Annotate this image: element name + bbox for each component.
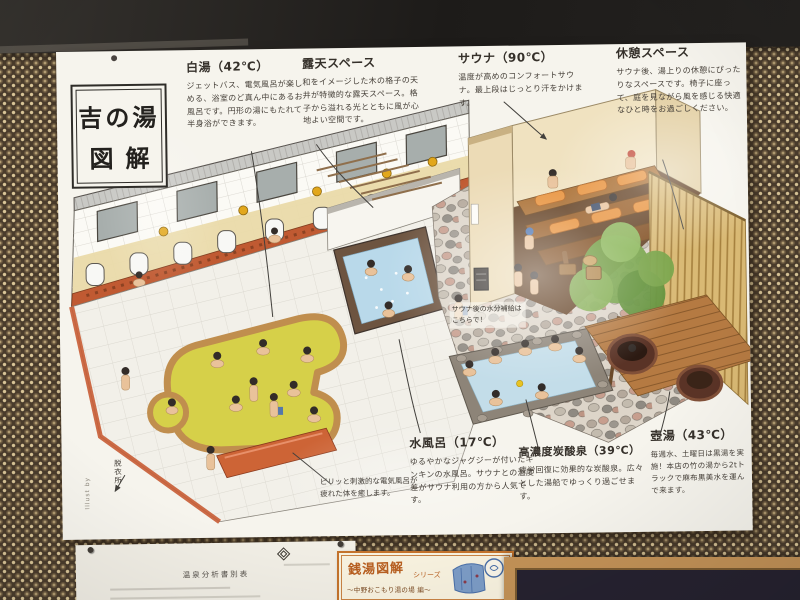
annotation-sauna: サウナ（90℃） 温度が高めのコンフォートサウナ。最上段はじっとり汗をかけます。 (458, 47, 589, 110)
annotation-tansan-body: 疲労回復に効果的な炭酸泉。広々とした湯船でゆっくり過ごせます。 (519, 462, 648, 503)
pushpin (111, 55, 117, 61)
annotation-tsuboyu-title: 壺湯（43℃） (650, 425, 746, 444)
illustrator-credit: Illust by (84, 448, 92, 510)
note-denki: ピリッと刺激的な電気風呂が疲れた体を癒します。 (320, 475, 422, 500)
annotation-sauna-body: 温度が高めのコンフォートサウナ。最上段はじっとり汗をかけます。 (458, 69, 589, 110)
annotation-tansan: 高濃度炭酸泉（39℃） 疲労回復に効果的な炭酸泉。広々とした湯船でゆっくり過ごせ… (518, 441, 647, 503)
annotation-roten-body: 和をイメージした木の格子の天井が特徴的な露天スペース。格子から溢れる光とともに風… (302, 75, 421, 129)
annotation-kyukei-body: サウナ後、湯上りの休憩にぴったりなスペースです。椅子に座って、庭を見ながら風を感… (616, 64, 743, 118)
annotation-roten-title: 露天スペース (302, 53, 420, 72)
poster-title-inner-border: 吉の湯 図解 (76, 89, 163, 184)
annotation-roten: 露天スペース 和をイメージした木の格子の天井が特徴的な露天スペース。格子から溢れ… (302, 53, 422, 129)
mini-poster-subtitle: 〜中野おこもり湯の場 編〜 (347, 584, 431, 594)
photo-of-bathhouse-poster: 吉の湯 図解 白湯（42℃） ジェットバス、電気風呂が楽しめる、浴室のど真ん中に… (0, 0, 800, 600)
annotation-shirayu-body: ジェットバス、電気風呂が楽しめる、浴室のど真ん中にあるお風呂です。円形の湯にもた… (186, 78, 305, 132)
annotation-tsuboyu: 壺湯（43℃） 毎週水、土曜日は黒湯を実施！本店の竹の湯から2tトラックで麻布黒… (650, 425, 747, 497)
annotation-tansan-title: 高濃度炭酸泉（39℃） (518, 441, 646, 460)
pushpin (337, 541, 343, 547)
poster-title-box: 吉の湯 図解 (70, 83, 167, 188)
annotation-sauna-title: サウナ（90℃） (458, 47, 588, 67)
note-suibun: サウナ後の水分補給はこちらで！ (450, 301, 526, 328)
sheet-row (110, 595, 260, 599)
poster-title-line1: 吉の湯 (78, 98, 159, 134)
sheet-row (110, 587, 230, 591)
mini-poster-series: シリーズ (413, 570, 441, 580)
mini-poster-illustration (447, 556, 507, 598)
poster-title-line2: 図解 (89, 139, 161, 175)
annotation-shirayu: 白湯（42℃） ジェットバス、電気風呂が楽しめる、浴室のど真ん中にあるお風呂です… (186, 56, 306, 132)
annotation-shirayu-title: 白湯（42℃） (186, 56, 304, 75)
onsen-analysis-sheet: 温泉分析書別表 (75, 541, 356, 600)
sento-zukai-mini-poster: 銭湯図解 シリーズ 〜中野おこもり湯の場 編〜 (337, 551, 514, 600)
wooden-picture-frame (504, 557, 800, 600)
bathhouse-guide-poster: 吉の湯 図解 白湯（42℃） ジェットバス、電気風呂が楽しめる、浴室のど真ん中に… (56, 42, 753, 540)
crest-icon (276, 547, 292, 561)
note-datsuijo: 脱衣所 (112, 459, 124, 505)
analysis-sheet-title: 温泉分析書別表 (76, 567, 356, 582)
mini-poster-title: 銭湯図解 (348, 557, 405, 578)
annotation-kyukei: 休憩スペース サウナ後、湯上りの休憩にぴったりなスペースです。椅子に座って、庭を… (616, 42, 744, 118)
annotation-kyukei-title: 休憩スペース (616, 42, 742, 62)
annotation-tsuboyu-body: 毎週水、土曜日は黒湯を実施！本店の竹の湯から2tトラックで麻布黒美水を運んで来ま… (651, 447, 748, 497)
pushpin (87, 547, 93, 553)
sheet-date-line (284, 563, 330, 566)
